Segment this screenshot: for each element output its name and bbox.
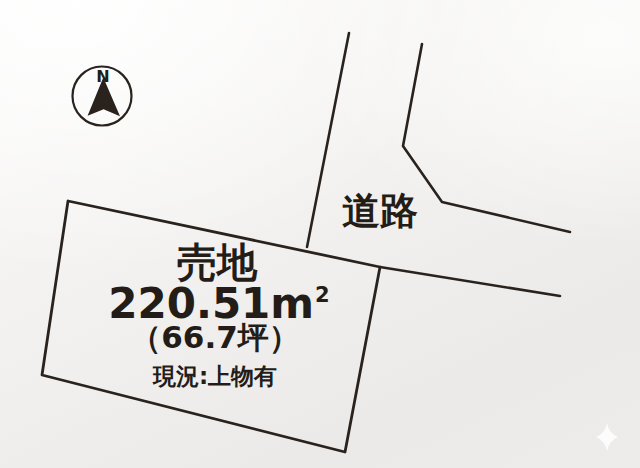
sparkle-icon: [596, 423, 618, 451]
plot-area-sqm-exponent: 2: [315, 283, 330, 307]
boundary-extension-line: [380, 267, 560, 296]
road-label: 道路: [342, 192, 418, 232]
diagram-lines-layer: N: [0, 0, 640, 468]
compass: N: [73, 67, 132, 126]
land-plot-diagram: N 道路 売地 220.51m2 （66.7坪） 現況:上物有: [0, 0, 640, 468]
north-arrow-icon: [88, 78, 120, 117]
road-edge-right-line: [403, 44, 570, 232]
plot-status: 現況:上物有: [153, 364, 277, 388]
plot-area-tsubo: （66.7坪）: [130, 321, 300, 354]
plot-title: 売地: [177, 241, 257, 283]
